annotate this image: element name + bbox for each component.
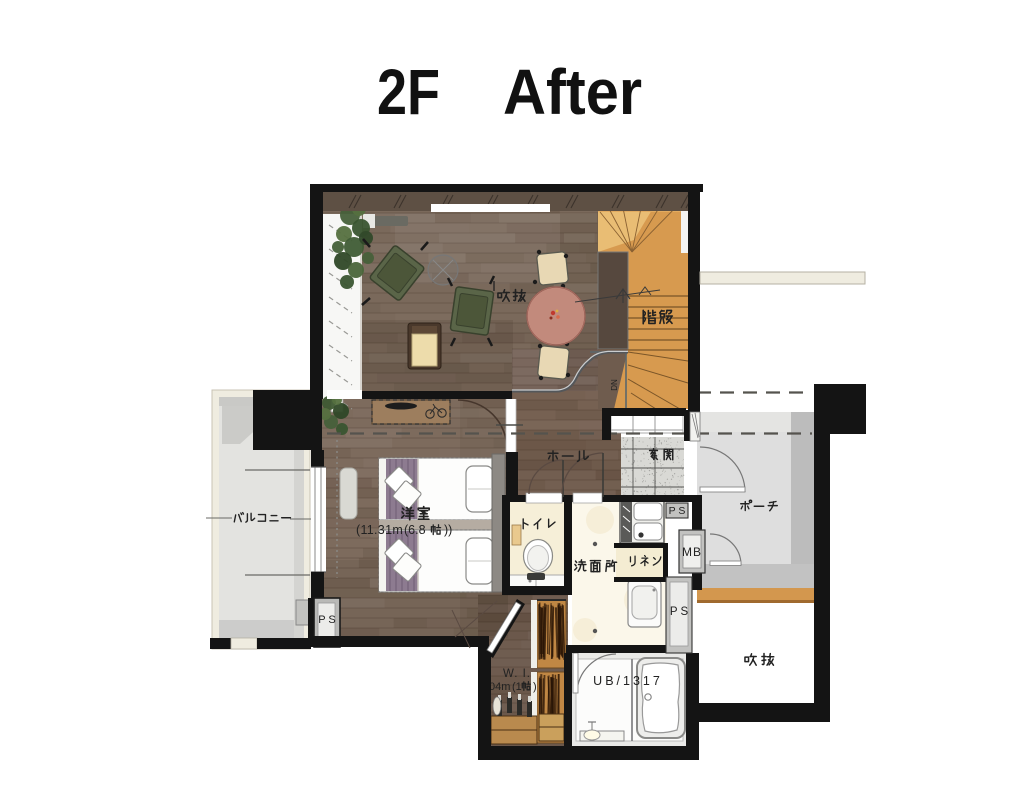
- svg-text:After: After: [503, 56, 642, 128]
- svg-text:W. I.: W. I.: [503, 668, 531, 680]
- svg-text:UB/1317: UB/1317: [593, 674, 663, 688]
- svg-text:)): )): [444, 523, 452, 537]
- svg-text:(6.8: (6.8: [404, 523, 426, 537]
- svg-text:2F: 2F: [377, 56, 440, 128]
- svg-text:04m: 04m: [489, 681, 510, 693]
- svg-text:P S: P S: [318, 614, 336, 626]
- svg-text:(1: (1: [512, 681, 522, 693]
- svg-text:MB: MB: [682, 545, 702, 559]
- svg-text:): ): [533, 681, 537, 693]
- svg-text:P S: P S: [669, 505, 686, 517]
- svg-text:(11.31m: (11.31m: [356, 523, 403, 537]
- svg-text:P S: P S: [670, 606, 689, 618]
- svg-text:DN: DN: [610, 379, 619, 391]
